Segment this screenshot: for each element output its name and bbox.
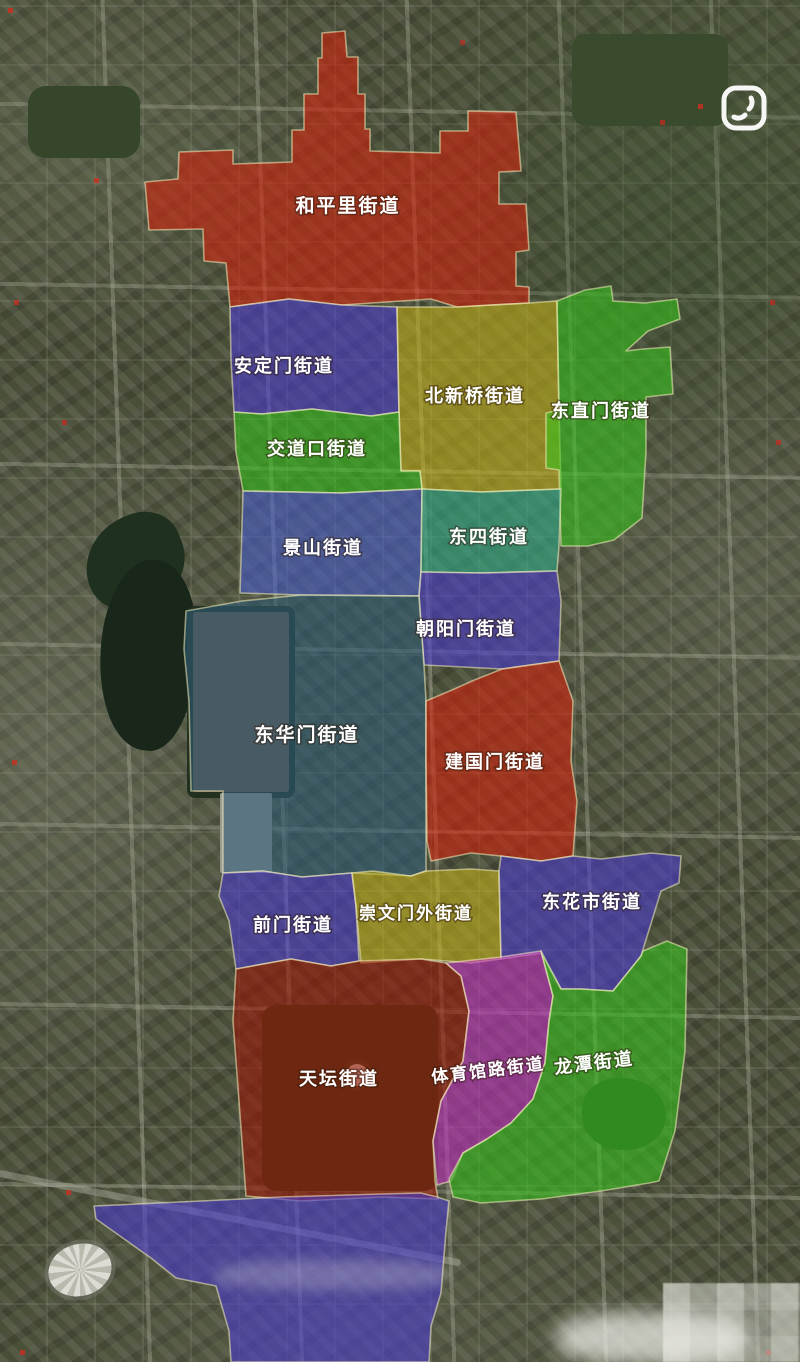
satellite-district-map: 和平里街道 安定门街道 北新桥街道 东直门街道 交道口街道 景山街道 东四街道 … <box>0 0 800 1362</box>
district-label-chaoyangmen: 朝阳门街道 <box>416 618 516 640</box>
district-overlay-layer: 和平里街道 安定门街道 北新桥街道 东直门街道 交道口街道 景山街道 东四街道 … <box>0 0 800 1362</box>
district-label-dongzhimen: 东直门街道 <box>551 400 651 422</box>
blur-smear <box>214 1260 450 1290</box>
district-label-qianmen: 前门街道 <box>253 914 333 936</box>
district-label-jianguomen: 建国门街道 <box>445 751 545 773</box>
district-label-andingmen: 安定门街道 <box>234 355 334 377</box>
district-label-beixinqiao: 北新桥街道 <box>425 385 525 407</box>
district-label-dongsi: 东四街道 <box>449 526 529 548</box>
district-label-jiaodaokou: 交道口街道 <box>267 438 367 460</box>
district-region-hepingli <box>145 31 529 307</box>
district-label-donghuashi: 东花市街道 <box>542 891 642 913</box>
district-label-donghuamen: 东华门街道 <box>254 723 359 746</box>
district-label-tiantan: 天坛街道 <box>299 1068 379 1090</box>
white-blur-patch <box>556 1312 746 1362</box>
rounded-square-hooks-icon <box>718 82 770 134</box>
district-label-hepingli: 和平里街道 <box>295 194 400 217</box>
district-label-chongwenmenwai: 崇文门外街道 <box>359 903 473 924</box>
district-label-jingshan: 景山街道 <box>283 537 363 559</box>
